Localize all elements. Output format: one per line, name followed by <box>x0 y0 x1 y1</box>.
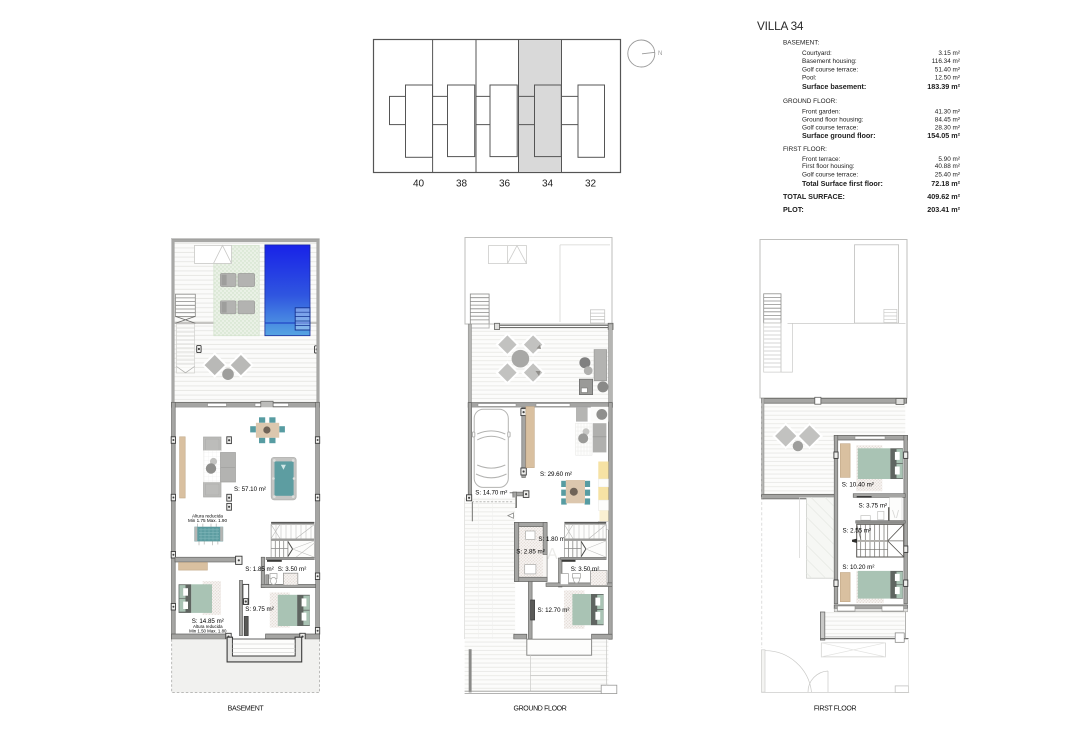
svg-text:GROUND FLOOR: GROUND FLOOR <box>514 706 567 713</box>
svg-text:N: N <box>658 51 662 57</box>
svg-text:183.39 m²: 183.39 m² <box>927 82 960 91</box>
svg-text:41.30 m²: 41.30 m² <box>935 109 960 116</box>
svg-text:TOTAL SURFACE:: TOTAL SURFACE: <box>783 192 845 201</box>
svg-text:5.90 m²: 5.90 m² <box>938 156 960 163</box>
svg-text:BASEMENT:: BASEMENT: <box>783 40 819 47</box>
svg-text:25.40 m²: 25.40 m² <box>935 171 960 178</box>
svg-text:FIRST FLOOR:: FIRST FLOOR: <box>783 146 827 153</box>
svg-text:S: 1.80 m²: S: 1.80 m² <box>538 536 567 543</box>
svg-text:203.41 m²: 203.41 m² <box>927 205 960 214</box>
svg-text:Total Surface first floor:: Total Surface first floor: <box>802 179 883 188</box>
svg-text:FIRST FLOOR: FIRST FLOOR <box>814 706 857 713</box>
svg-text:S: 9.75 m²: S: 9.75 m² <box>245 606 274 613</box>
svg-text:72.18 m²: 72.18 m² <box>931 179 960 188</box>
svg-text:12.50 m²: 12.50 m² <box>935 75 960 82</box>
svg-text:Golf course terrace:: Golf course terrace: <box>802 171 858 178</box>
svg-text:Min 1.75 Max. 1.90: Min 1.75 Max. 1.90 <box>188 518 228 523</box>
svg-text:40.88 m²: 40.88 m² <box>935 163 960 170</box>
svg-text:Basement housing:: Basement housing: <box>802 58 857 65</box>
svg-text:Golf course terrace:: Golf course terrace: <box>802 66 858 73</box>
svg-text:32: 32 <box>585 179 597 190</box>
svg-text:S: 2.55 m²: S: 2.55 m² <box>843 528 872 535</box>
svg-text:Ground floor housing:: Ground floor housing: <box>802 116 864 123</box>
svg-text:36: 36 <box>499 179 511 190</box>
svg-text:First floor housing:: First floor housing: <box>802 163 855 170</box>
svg-text:Min 1.50 Max. 1.80: Min 1.50 Max. 1.80 <box>189 628 227 633</box>
svg-text:S: 3.50 m²: S: 3.50 m² <box>571 566 600 573</box>
svg-text:S: 1.85 m²: S: 1.85 m² <box>245 566 274 573</box>
svg-text:S: 12.70 m²: S: 12.70 m² <box>538 607 570 614</box>
svg-text:84.45 m²: 84.45 m² <box>935 116 960 123</box>
svg-text:GROUND FLOOR:: GROUND FLOOR: <box>783 98 837 105</box>
svg-text:S: 57.10 m²: S: 57.10 m² <box>234 486 266 493</box>
svg-text:S: 10.20 m²: S: 10.20 m² <box>842 564 874 571</box>
svg-text:VILLA 34: VILLA 34 <box>757 19 804 33</box>
svg-text:40: 40 <box>413 179 425 190</box>
svg-text:Surface basement:: Surface basement: <box>802 82 866 91</box>
svg-text:S: 14.70 m²: S: 14.70 m² <box>475 490 507 497</box>
svg-text:S: 3.50 m²: S: 3.50 m² <box>278 566 307 573</box>
svg-text:38: 38 <box>456 179 468 190</box>
svg-text:154.05 m²: 154.05 m² <box>927 131 960 140</box>
svg-text:Front terrace:: Front terrace: <box>802 156 841 163</box>
svg-text:Front garden:: Front garden: <box>802 109 841 116</box>
svg-text:Courtyard:: Courtyard: <box>802 50 832 57</box>
svg-text:S: 2.85 m²: S: 2.85 m² <box>516 548 545 555</box>
svg-text:Pool:: Pool: <box>802 75 817 82</box>
svg-text:Surface ground floor:: Surface ground floor: <box>802 131 875 140</box>
svg-text:51.40 m²: 51.40 m² <box>935 66 960 73</box>
svg-text:S: 3.75 m²: S: 3.75 m² <box>859 502 888 509</box>
svg-text:409.62 m²: 409.62 m² <box>927 192 960 201</box>
svg-text:34: 34 <box>542 179 554 190</box>
svg-text:116.34 m²: 116.34 m² <box>932 58 960 65</box>
svg-text:PLOT:: PLOT: <box>783 205 804 214</box>
svg-text:S: 29.60 m²: S: 29.60 m² <box>540 471 572 478</box>
svg-text:3.15 m²: 3.15 m² <box>938 50 960 57</box>
svg-text:S: 10.40 m²: S: 10.40 m² <box>842 482 874 489</box>
svg-text:BASEMENT: BASEMENT <box>228 706 265 713</box>
